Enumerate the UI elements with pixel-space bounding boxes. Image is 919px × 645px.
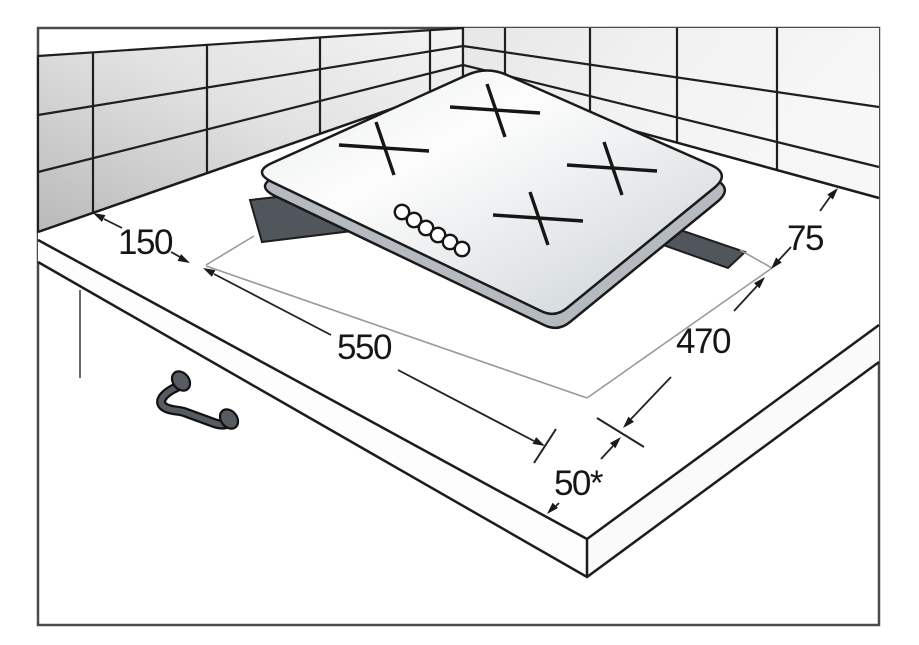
dim-label-50: 50* [554,464,604,503]
dim-label-150: 150 [118,223,173,262]
dim-label-75: 75 [787,219,823,258]
dim-label-550: 550 [337,328,392,367]
control-knob [455,242,469,256]
dim-label-470: 470 [676,322,731,361]
installation-diagram: 150 550 470 75 50* [0,0,919,645]
diagram-canvas: 150 550 470 75 50* [0,0,919,645]
